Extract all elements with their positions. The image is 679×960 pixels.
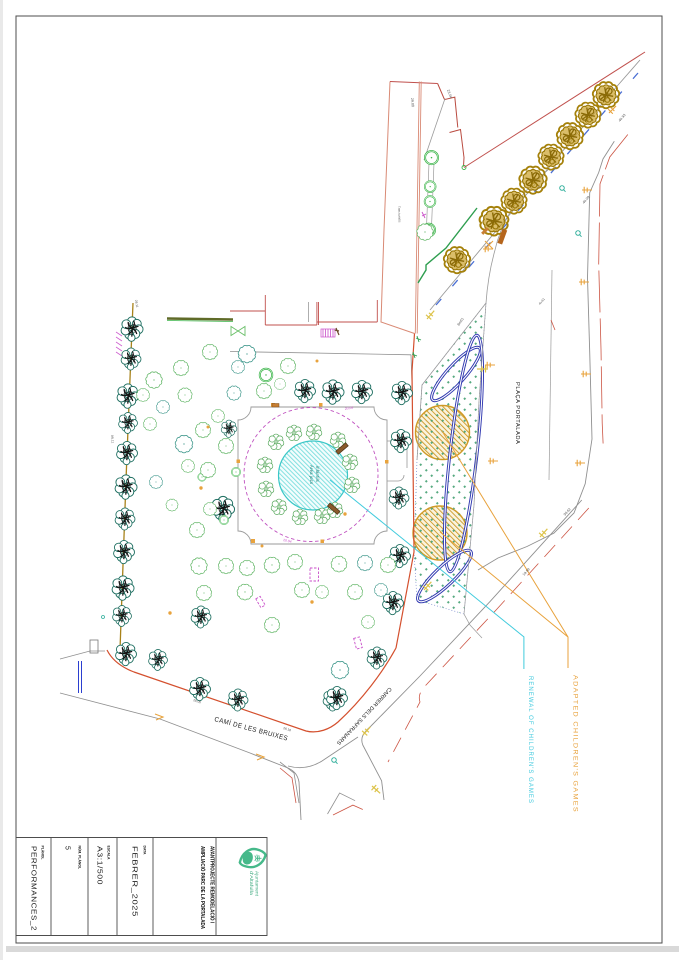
svg-text:infantils: infantils: [315, 466, 320, 482]
svg-text:PLÀNOL: PLÀNOL: [41, 846, 46, 860]
svg-text:Ajuntament: Ajuntament: [255, 871, 260, 897]
svg-text:FEBRER_2025: FEBRER_2025: [131, 846, 138, 917]
svg-text:AVANTPROJECTE REMODELACIÓ I: AVANTPROJECTE REMODELACIÓ I: [209, 846, 217, 923]
svg-text:AMPLIACIÓ PARC DE LA PORTALADA: AMPLIACIÓ PARC DE LA PORTALADA: [199, 846, 207, 929]
svg-text:5: 5: [64, 846, 71, 850]
svg-text:ESCALA: ESCALA: [107, 846, 111, 860]
svg-text:RENEWAL OF CHILDREN'S GAMES: RENEWAL OF CHILDREN'S GAMES: [527, 676, 534, 804]
svg-text:29.08: 29.08: [410, 98, 415, 107]
svg-text:PERFORMANCES_2: PERFORMANCES_2: [30, 846, 37, 931]
svg-text:PLAÇA PORTALADA: PLAÇA PORTALADA: [514, 382, 520, 444]
svg-text:ADAPTED CHILDREN'S GAMES: ADAPTED CHILDREN'S GAMES: [572, 675, 579, 813]
svg-text:9R.11: 9R.11: [110, 435, 115, 444]
svg-text:Tren turistic: Tren turistic: [397, 206, 402, 223]
svg-text:d'Altafulla: d'Altafulla: [249, 871, 254, 896]
svg-text:DATA: DATA: [143, 846, 147, 855]
svg-text:NÚM. PLÀNOL: NÚM. PLÀNOL: [78, 846, 83, 870]
svg-text:Àrea jocs: Àrea jocs: [309, 465, 314, 484]
svg-text:A3:1/500: A3:1/500: [96, 846, 103, 885]
